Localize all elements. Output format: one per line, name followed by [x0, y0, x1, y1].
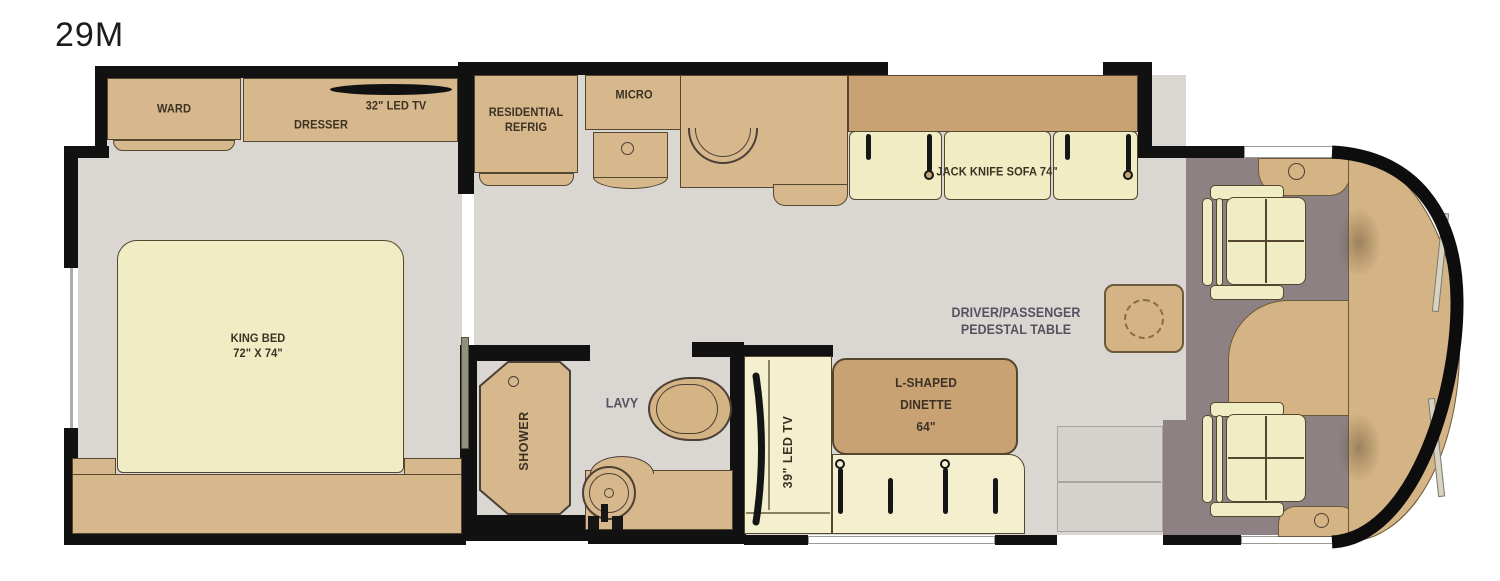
- wall-bottom-entry-left: [995, 535, 1057, 545]
- tv-32-crescent: [330, 84, 452, 95]
- refrig-label-line1: RESIDENTIAL: [489, 105, 564, 120]
- floorplan-title: 29M: [55, 16, 124, 55]
- cab-bottom-window: [1241, 536, 1341, 544]
- bedroom-window-glass-line: [70, 268, 73, 428]
- sofa-seatbelt-2: [927, 134, 932, 172]
- pedestal-table-label: DRIVER/PASSENGER PEDESTAL TABLE: [952, 304, 1081, 338]
- pedestal-table-label-line1: DRIVER/PASSENGER: [952, 304, 1081, 321]
- tv-39-label: 39" LED TV: [781, 416, 795, 489]
- sofa-seatbelt-3: [1065, 134, 1070, 160]
- dinette-seatbelt-4: [993, 478, 998, 514]
- bath-pocket-door: [461, 337, 469, 449]
- cab-bottom-console-cupholder: [1314, 513, 1329, 528]
- sofa-seatbelt-4: [1126, 134, 1131, 172]
- bed-nightstand-left: [72, 458, 116, 475]
- driver-seat-backbar-2: [1216, 415, 1223, 503]
- refrig-label-line2: REFRIG: [489, 120, 564, 135]
- passenger-seat-backbar-2: [1216, 198, 1223, 286]
- tv-39-cabinet-divider: [768, 360, 770, 510]
- sofa-label: JACK KNIFE SOFA 74": [936, 165, 1057, 180]
- dash-shadow-driver: [1328, 400, 1390, 495]
- dresser-label: DRESSER: [294, 118, 348, 133]
- vanity-sink-drain: [604, 488, 614, 498]
- pedestal-table-dashed-circle: [1124, 299, 1164, 339]
- wall-refrig-left: [458, 62, 474, 194]
- wall-vanity-bottom: [588, 530, 746, 544]
- dinette-window: [808, 536, 995, 544]
- entry-steps: [1057, 426, 1163, 532]
- wall-cab-step: [1152, 146, 1244, 158]
- wall-bottom-dinette-left: [744, 535, 808, 545]
- king-bed-label-line1: KING BED: [231, 331, 286, 346]
- cab-floor-strip: [1163, 420, 1188, 535]
- refrig-label: RESIDENTIAL REFRIG: [489, 105, 564, 135]
- kitchen-counter-ext: [773, 184, 848, 206]
- dinette-seatbelt-1: [838, 468, 843, 514]
- wall-bedroom-slideout-left: [95, 66, 107, 155]
- driver-seat: [1202, 402, 1308, 518]
- pedestal-table-label-line2: PEDESTAL TABLE: [952, 321, 1081, 338]
- wall-bedroom-slideout-top: [95, 66, 460, 78]
- range: [593, 132, 668, 178]
- entry-step-divider: [1058, 481, 1161, 483]
- wall-rear-upper: [64, 146, 78, 268]
- wall-bottom-bedroom: [64, 533, 466, 545]
- bed-platform: [72, 474, 462, 534]
- driver-seat-armrest-bottom: [1210, 502, 1284, 517]
- driver-seat-cushion-hline: [1228, 457, 1304, 459]
- driver-seat-backbar-1: [1202, 415, 1213, 503]
- shower-label: SHOWER: [517, 411, 531, 470]
- wall-kitchen-top: [458, 62, 888, 75]
- passenger-seat-cushion-hline: [1228, 240, 1304, 242]
- sofa-backrest: [848, 75, 1138, 132]
- rv-floorplan-29m: 29M WARD DRESSER 32" LED TV RESIDENTIAL …: [0, 0, 1500, 581]
- wall-shower-top: [462, 345, 590, 361]
- passenger-seat: [1202, 185, 1308, 301]
- tv-39-cabinet-baseline: [746, 512, 830, 514]
- king-bed-label: KING BED 72" X 74": [231, 331, 286, 361]
- bed-nightstand-right: [404, 458, 462, 475]
- vanity-faucet-stem: [601, 504, 608, 522]
- lavy-label: LAVY: [606, 395, 639, 412]
- king-bed-label-line2: 72" X 74": [231, 346, 286, 361]
- microwave: [585, 75, 682, 130]
- dinette-label-line2: DINETTE: [895, 394, 957, 416]
- dash-shadow-passenger: [1328, 195, 1390, 290]
- dinette-label: L-SHAPED DINETTE 64": [895, 372, 957, 438]
- vanity-faucet-pad-left: [588, 516, 599, 530]
- tv-32-label: 32" LED TV: [366, 99, 427, 114]
- dinette-seatbelt-2: [888, 478, 893, 514]
- ward-door: [113, 140, 235, 151]
- dinette-label-line1: L-SHAPED: [895, 372, 957, 394]
- refrigerator-door: [479, 173, 574, 186]
- wall-bottom-cab: [1163, 535, 1241, 545]
- dinette-seatbelt-3: [943, 468, 948, 514]
- engine-console: [1228, 300, 1358, 416]
- cab-top-window: [1244, 146, 1334, 158]
- wall-shower-bottom: [462, 515, 588, 541]
- passenger-seat-backbar-1: [1202, 198, 1213, 286]
- cab-top-console-cupholder: [1288, 163, 1305, 180]
- shower-drain: [508, 376, 519, 387]
- passenger-seat-armrest-bottom: [1210, 285, 1284, 300]
- dinette-label-line3: 64": [895, 416, 957, 438]
- wall-sofa-right-vert: [1138, 62, 1152, 158]
- range-knob: [621, 142, 634, 155]
- vanity-faucet-pad-right: [612, 516, 623, 530]
- sofa-seatbelt-1: [866, 134, 871, 160]
- ward-label: WARD: [157, 102, 191, 117]
- toilet-seat: [656, 384, 718, 434]
- micro-label: MICRO: [615, 88, 652, 103]
